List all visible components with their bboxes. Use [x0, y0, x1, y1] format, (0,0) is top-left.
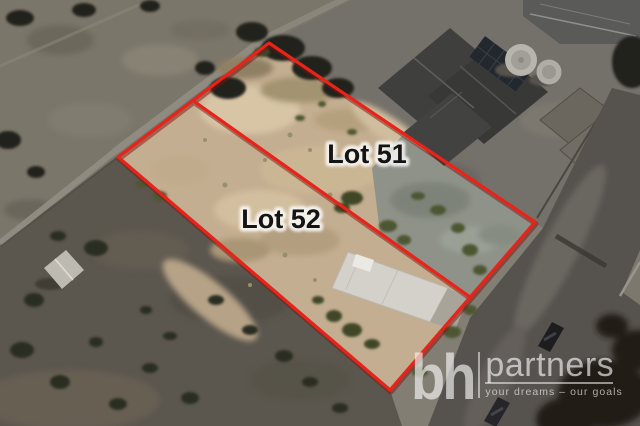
brand-divider-rule	[485, 382, 613, 384]
brand-right-block: partners your dreams – our goals	[478, 352, 622, 398]
lot-52-label: Lot 52	[241, 204, 321, 234]
brand-partners: partners	[485, 352, 622, 379]
aerial-photo: Lot 51 Lot 52 Lot 51 Lot 52 bh partners …	[0, 0, 640, 426]
lot-51-label: Lot 51	[327, 139, 407, 169]
brand-watermark: bh partners your dreams – our goals	[411, 352, 623, 408]
brand-tagline: your dreams – our goals	[485, 386, 622, 398]
brand-bh: bh	[411, 345, 473, 409]
